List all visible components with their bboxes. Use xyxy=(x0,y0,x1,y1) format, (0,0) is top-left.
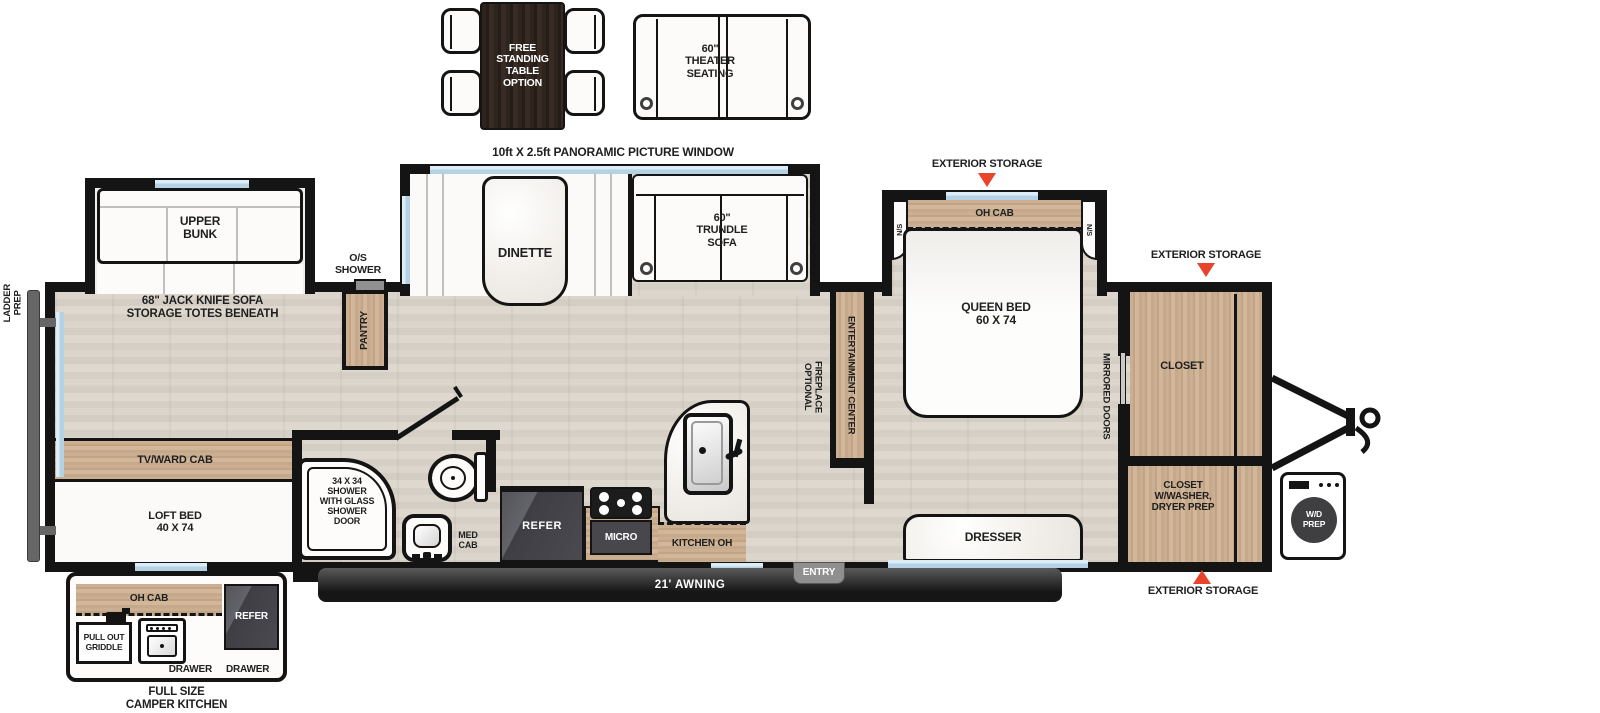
nightstand: N/S xyxy=(1081,200,1097,260)
wd-prep-label: W/D PREP xyxy=(1303,510,1325,529)
ladder-bracket xyxy=(40,318,56,327)
queen-bed: QUEEN BED 60 X 74 xyxy=(903,228,1083,418)
faucet-dot xyxy=(156,627,159,630)
tv-ward-cab: TV/WARD CAB xyxy=(55,438,295,482)
jack-knife-sofa-seat xyxy=(97,264,303,294)
free-standing-table: FREE STANDING TABLE OPTION xyxy=(480,2,565,130)
dining-chair xyxy=(564,8,605,54)
dinette-label: DINETTE xyxy=(498,246,552,261)
cabinet-face-line xyxy=(1234,294,1237,562)
loft-bed-label: LOFT BED 40 X 74 xyxy=(148,510,201,535)
kitchen-oh-label: KITCHEN OH xyxy=(672,538,732,549)
theater-seating-label: 60" THEATER SEATING xyxy=(650,43,770,80)
faucet-handle-icon xyxy=(412,554,420,559)
washer-knob-dot xyxy=(1327,483,1331,487)
griddle-icon xyxy=(122,608,130,614)
bunk-slideout: UPPER BUNK xyxy=(85,178,315,294)
faucet-dot xyxy=(162,627,165,630)
shower-label: 34 X 34 SHOWER WITH GLASS SHOWER DOOR xyxy=(306,476,388,526)
closet xyxy=(1130,292,1262,458)
pull-out-griddle-label: PULL OUT GRIDDLE xyxy=(84,633,125,652)
camper-oh-cab-label: OH CAB xyxy=(130,593,168,604)
upper-bunk-label: UPPER BUNK xyxy=(140,215,260,242)
storage-arrow-icon xyxy=(978,173,996,187)
floorplan-canvas: FREE STANDING TABLE OPTION 60" THEATER S… xyxy=(0,0,1600,713)
med-cab-label: MED CAB xyxy=(450,530,486,550)
chair-back-line xyxy=(594,77,596,111)
awning-bar: 21' AWNING xyxy=(318,568,1062,602)
chair-back-line xyxy=(450,15,452,49)
wall xyxy=(1118,466,1128,572)
washer-dryer-icon: W/D PREP xyxy=(1280,472,1346,560)
theater-seating: 60" THEATER SEATING xyxy=(633,14,811,120)
drawer-labels: DRAWER DRAWER xyxy=(154,664,284,675)
hitch-tongue-icon xyxy=(1272,356,1402,476)
tv-ward-cab-label: TV/WARD CAB xyxy=(137,454,212,466)
chair-back-line xyxy=(450,77,452,111)
exterior-storage-label: EXTERIOR STORAGE xyxy=(1133,585,1273,597)
ladder-bracket xyxy=(40,526,56,535)
drawer-label: DRAWER xyxy=(226,664,269,675)
dresser: DRESSER xyxy=(903,514,1083,562)
cup-holder-icon xyxy=(791,97,804,110)
dining-chair xyxy=(564,70,605,116)
camper-sink-drain xyxy=(160,644,164,648)
closet-label: CLOSET xyxy=(1134,360,1230,372)
shower: 34 X 34 SHOWER WITH GLASS SHOWER DOOR xyxy=(298,458,396,560)
bench-line xyxy=(610,174,612,296)
wall xyxy=(293,562,321,582)
sofa-armrest-line xyxy=(786,19,788,117)
chair-back-line xyxy=(594,15,596,49)
camper-oh-cab: OH CAB xyxy=(76,584,222,616)
wall xyxy=(1118,456,1262,466)
sofa-armrest-line xyxy=(786,194,788,280)
entertainment-center: ENTERTAINMENT CENTER xyxy=(836,292,864,458)
wall xyxy=(864,468,874,504)
dining-chair xyxy=(441,8,482,54)
faucet-spout-icon xyxy=(423,552,431,559)
faucet-handle-icon xyxy=(434,554,442,559)
sink-basin xyxy=(413,524,441,548)
bench-line xyxy=(594,174,596,296)
storage-arrow-icon xyxy=(1197,263,1215,277)
camper-kitchen: OH CAB REFER PULL OUT GRIDDLE DRAWER DRA… xyxy=(66,572,287,682)
window xyxy=(135,563,207,571)
optional-fireplace: OPTIONAL FIREPLACE xyxy=(794,322,830,452)
nightstand-label: N/S xyxy=(1085,224,1093,236)
burner-icon xyxy=(617,499,625,507)
dinette-table: DINETTE xyxy=(482,176,568,306)
refer-label: REFER xyxy=(522,520,562,532)
cooktop xyxy=(590,487,652,519)
sofa-armrest-line xyxy=(654,194,656,280)
washer-drum: W/D PREP xyxy=(1291,497,1337,543)
entry-door: ENTRY xyxy=(793,562,845,584)
toilet xyxy=(428,454,480,502)
trundle-sofa: 60" TRUNDLE SOFA xyxy=(632,174,808,282)
kitchen-oh-cab: KITCHEN OH xyxy=(658,522,746,562)
microwave: MICRO xyxy=(590,520,652,555)
window xyxy=(888,560,1088,568)
ladder-prep: LADDER PREP xyxy=(2,258,26,348)
burner-icon xyxy=(599,505,609,515)
ladder-prep-label: LADDER PREP xyxy=(3,284,24,322)
mirrored-doors: MIRRORED DOORS xyxy=(1094,330,1116,462)
dresser-label: DRESSER xyxy=(965,531,1022,544)
bathroom-sink xyxy=(402,514,452,562)
camper-refer-label: REFER xyxy=(235,611,268,622)
exterior-storage-label: EXTERIOR STORAGE xyxy=(917,158,1057,170)
window xyxy=(155,180,249,188)
sink-drain-dot xyxy=(699,447,706,454)
cup-holder-icon xyxy=(790,262,803,275)
bench-line xyxy=(442,174,444,296)
closet-washer-label: CLOSET W/WASHER, DRYER PREP xyxy=(1128,480,1238,514)
dinette-slideout: 60" TRUNDLE SOFA xyxy=(400,164,820,296)
jack-knife-sofa-label: 68" JACK KNIFE SOFA STORAGE TOTES BENEAT… xyxy=(105,295,300,321)
panoramic-window-label: 10ft X 2.5ft PANORAMIC PICTURE WINDOW xyxy=(440,146,786,159)
optional-fireplace-label: OPTIONAL FIREPLACE xyxy=(801,361,822,413)
burner-icon xyxy=(599,492,609,502)
upper-bunk-mattress: UPPER BUNK xyxy=(97,188,303,264)
drawer-label: DRAWER xyxy=(169,664,212,675)
washer-control-icon xyxy=(1289,481,1309,489)
mirrored-doors-label: MIRRORED DOORS xyxy=(1100,353,1111,439)
pantry-label: PANTRY xyxy=(359,311,370,350)
panoramic-picture-window xyxy=(430,166,788,174)
queen-bed-label: QUEEN BED 60 X 74 xyxy=(936,301,1056,328)
sofa-divider-line xyxy=(233,264,235,294)
trundle-sofa-label: 60" TRUNDLE SOFA xyxy=(662,212,782,249)
wall xyxy=(292,430,398,440)
oh-cab-label: OH CAB xyxy=(975,208,1013,219)
window xyxy=(402,196,410,284)
toilet-drain-dot xyxy=(451,476,455,480)
camper-refer: REFER xyxy=(224,584,279,650)
faucet-dot xyxy=(150,627,153,630)
entry-label: ENTRY xyxy=(803,567,836,578)
cup-holder-icon xyxy=(640,262,653,275)
os-shower-label: O/S SHOWER xyxy=(318,253,398,277)
ladder-prep-bar xyxy=(27,290,40,562)
pull-out-griddle: PULL OUT GRIDDLE xyxy=(76,622,132,664)
washer-knob-dot xyxy=(1335,483,1339,487)
bunk-divider-line xyxy=(100,206,300,208)
washer-knob-dot xyxy=(1319,483,1323,487)
kitchen-counter xyxy=(664,400,750,524)
burner-icon xyxy=(632,505,642,515)
window xyxy=(946,192,1038,200)
awning-label: 21' AWNING xyxy=(655,579,726,592)
dining-chair xyxy=(441,70,482,116)
pantry: PANTRY xyxy=(342,290,388,370)
free-standing-table-label: FREE STANDING TABLE OPTION xyxy=(496,43,548,90)
bench-line xyxy=(426,174,428,296)
toilet-tank xyxy=(474,452,488,502)
entertainment-center-label: ENTERTAINMENT CENTER xyxy=(845,316,856,434)
storage-arrow-icon xyxy=(1193,570,1211,584)
wall xyxy=(1118,292,1130,356)
sofa-divider-line xyxy=(163,264,165,294)
refrigerator: REFER xyxy=(500,486,584,562)
micro-label: MICRO xyxy=(605,532,637,543)
bedroom-oh-cab: OH CAB xyxy=(907,200,1082,230)
loft-bed: LOFT BED 40 X 74 xyxy=(55,482,295,562)
wall xyxy=(830,458,874,468)
camper-sink xyxy=(138,618,186,664)
cup-holder-icon xyxy=(640,97,653,110)
burner-icon xyxy=(632,492,642,502)
wall xyxy=(864,292,874,458)
mirrored-door-panel xyxy=(1120,352,1126,408)
camper-kitchen-caption: FULL SIZE CAMPER KITCHEN xyxy=(66,686,287,712)
faucet-dot xyxy=(168,627,171,630)
exterior-storage-label: EXTERIOR STORAGE xyxy=(1136,249,1276,261)
sink-basin-line xyxy=(691,421,723,485)
window xyxy=(56,312,64,477)
